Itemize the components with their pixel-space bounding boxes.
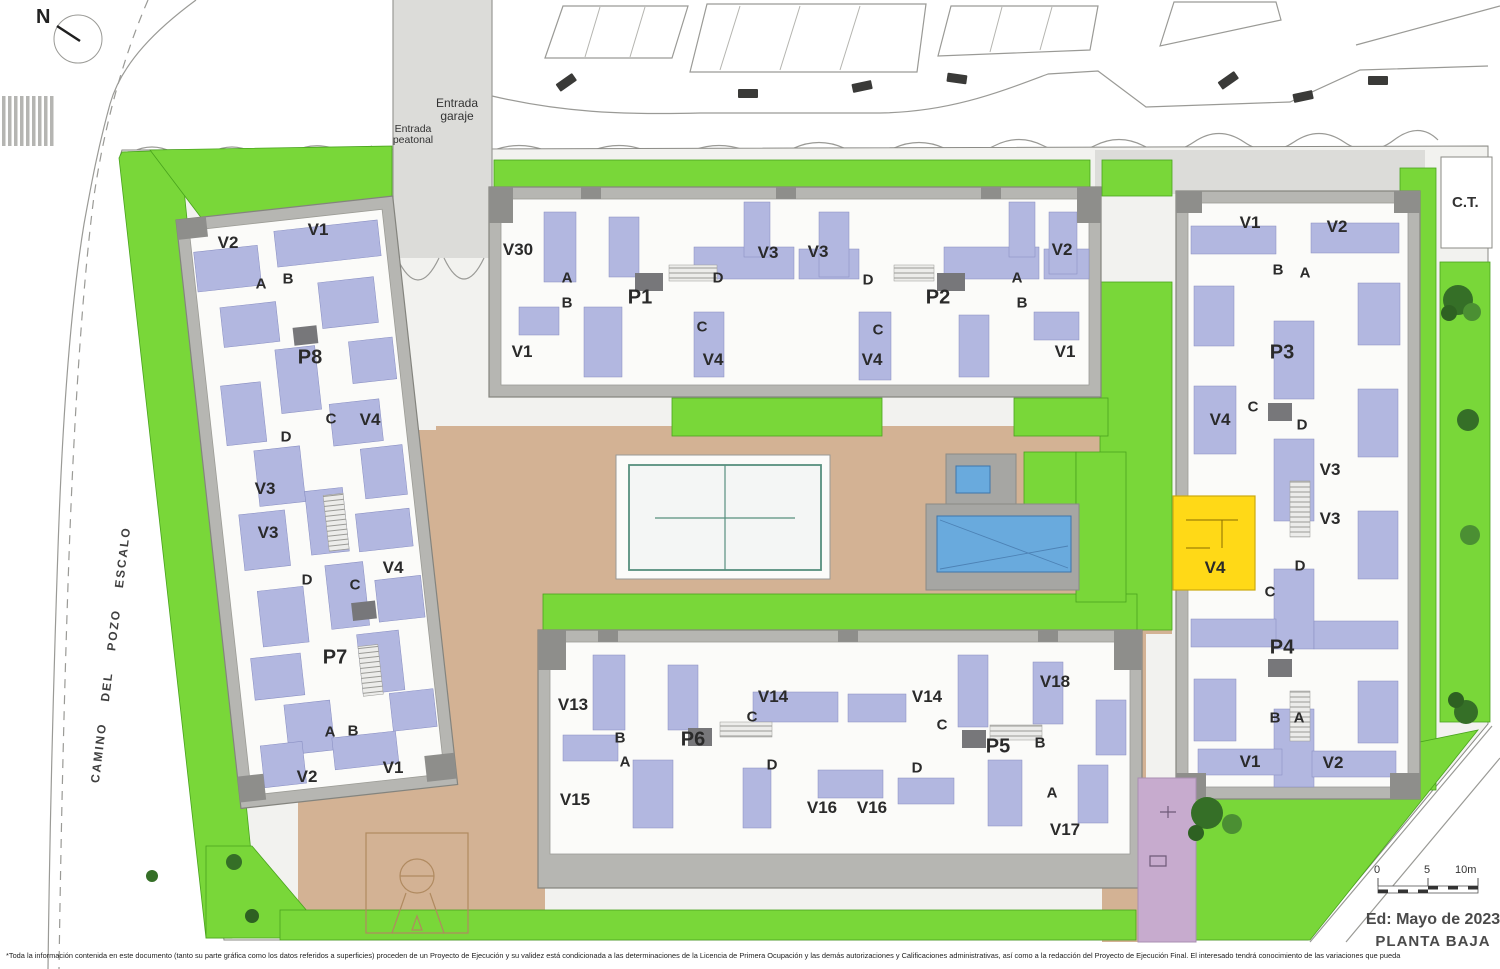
ct-label: C.T. <box>1452 194 1479 211</box>
unit-label-d[interactable]: D <box>767 757 778 774</box>
unit-label-d[interactable]: D <box>912 760 923 777</box>
unit-label-v17[interactable]: V17 <box>1050 820 1080 840</box>
unit-label-d[interactable]: D <box>302 572 313 589</box>
unit-label-v4[interactable]: V4 <box>862 350 883 370</box>
unit-label-b[interactable]: B <box>562 295 573 312</box>
unit-label-a[interactable]: A <box>1300 265 1311 282</box>
plan-edition: Ed: Mayo de 2023 <box>1358 911 1500 929</box>
unit-label-d[interactable]: D <box>863 272 874 289</box>
unit-label-v1[interactable]: V1 <box>308 220 329 240</box>
unit-label-v16[interactable]: V16 <box>857 798 887 818</box>
entrance-garage-label: Entrada garaje <box>420 97 494 123</box>
unit-label-v1[interactable]: V1 <box>383 758 404 778</box>
unit-label-v18[interactable]: V18 <box>1040 672 1070 692</box>
unit-label-c[interactable]: C <box>1265 584 1276 601</box>
unit-label-d[interactable]: D <box>1297 417 1308 434</box>
unit-label-v3[interactable]: V3 <box>808 242 829 262</box>
entrance-garage-line2: garaje <box>440 109 473 123</box>
unit-label-v1[interactable]: V1 <box>1240 752 1261 772</box>
unit-label-b[interactable]: B <box>1273 262 1284 279</box>
unit-label-v13[interactable]: V13 <box>558 695 588 715</box>
unit-label-v4[interactable]: V4 <box>703 350 724 370</box>
unit-label-b[interactable]: B <box>615 730 626 747</box>
unit-label-b[interactable]: B <box>283 271 294 288</box>
unit-label-a[interactable]: A <box>1294 710 1305 727</box>
unit-label-p6[interactable]: P6 <box>681 729 705 752</box>
unit-label-c[interactable]: C <box>326 411 337 428</box>
plan-floor-title: PLANTA BAJA <box>1358 933 1500 950</box>
unit-label-a[interactable]: A <box>562 270 573 287</box>
unit-label-v3[interactable]: V3 <box>258 523 279 543</box>
unit-label-v1[interactable]: V1 <box>1055 342 1076 362</box>
unit-label-v2[interactable]: V2 <box>297 767 318 787</box>
unit-label-p8[interactable]: P8 <box>298 347 322 370</box>
unit-label-c[interactable]: C <box>873 322 884 339</box>
unit-label-v4[interactable]: V4 <box>1205 558 1226 578</box>
unit-label-v2[interactable]: V2 <box>218 233 239 253</box>
unit-label-p1[interactable]: P1 <box>628 287 652 310</box>
unit-label-v3[interactable]: V3 <box>758 243 779 263</box>
unit-label-d[interactable]: D <box>1295 558 1306 575</box>
unit-label-v2[interactable]: V2 <box>1052 240 1073 260</box>
unit-label-d[interactable]: D <box>281 429 292 446</box>
street-name-label: CAMINO DEL POZO ESCALO <box>88 525 133 783</box>
unit-label-p3[interactable]: P3 <box>1270 342 1294 365</box>
unit-label-c[interactable]: C <box>937 717 948 734</box>
scale-tick-10m: 10m <box>1455 864 1476 876</box>
scale-tick-0: 0 <box>1374 864 1380 876</box>
unit-label-c[interactable]: C <box>747 709 758 726</box>
unit-label-c[interactable]: C <box>350 577 361 594</box>
unit-label-a[interactable]: A <box>256 276 267 293</box>
unit-label-p2[interactable]: P2 <box>926 287 950 310</box>
unit-label-v16[interactable]: V16 <box>807 798 837 818</box>
unit-label-p5[interactable]: P5 <box>986 736 1010 759</box>
north-label: N <box>36 6 50 29</box>
unit-label-a[interactable]: A <box>1047 785 1058 802</box>
unit-label-c[interactable]: C <box>697 319 708 336</box>
labels-layer: N Entrada garaje Entrada peatonal CAMINO… <box>0 0 1500 969</box>
entrance-pedestrian-label: Entrada peatonal <box>376 124 450 146</box>
entrance-pedestrian-line2: peatonal <box>393 134 433 146</box>
unit-label-p4[interactable]: P4 <box>1270 637 1294 660</box>
unit-label-v4[interactable]: V4 <box>360 410 381 430</box>
unit-label-b[interactable]: B <box>348 723 359 740</box>
unit-label-a[interactable]: A <box>1012 270 1023 287</box>
unit-label-v2[interactable]: V2 <box>1323 753 1344 773</box>
unit-label-a[interactable]: A <box>325 724 336 741</box>
unit-label-v15[interactable]: V15 <box>560 790 590 810</box>
site-plan: N Entrada garaje Entrada peatonal CAMINO… <box>0 0 1500 969</box>
disclaimer-text: *Toda la información contenida en este d… <box>6 951 1498 960</box>
unit-label-p7[interactable]: P7 <box>323 647 347 670</box>
unit-label-v4[interactable]: V4 <box>1210 410 1231 430</box>
unit-label-b[interactable]: B <box>1270 710 1281 727</box>
unit-label-v3[interactable]: V3 <box>1320 509 1341 529</box>
unit-label-v4[interactable]: V4 <box>383 558 404 578</box>
unit-label-v2[interactable]: V2 <box>1327 217 1348 237</box>
unit-label-v30[interactable]: V30 <box>503 240 533 260</box>
entrance-garage-line1: Entrada <box>436 96 478 110</box>
unit-label-v1[interactable]: V1 <box>512 342 533 362</box>
unit-label-v3[interactable]: V3 <box>255 479 276 499</box>
unit-label-a[interactable]: A <box>620 754 631 771</box>
scale-tick-5: 5 <box>1424 864 1430 876</box>
unit-label-v14[interactable]: V14 <box>758 687 788 707</box>
unit-label-d[interactable]: D <box>713 270 724 287</box>
unit-label-v1[interactable]: V1 <box>1240 213 1261 233</box>
unit-label-c[interactable]: C <box>1248 399 1259 416</box>
unit-label-b[interactable]: B <box>1035 735 1046 752</box>
unit-label-v14[interactable]: V14 <box>912 687 942 707</box>
unit-label-b[interactable]: B <box>1017 295 1028 312</box>
unit-label-v3[interactable]: V3 <box>1320 460 1341 480</box>
